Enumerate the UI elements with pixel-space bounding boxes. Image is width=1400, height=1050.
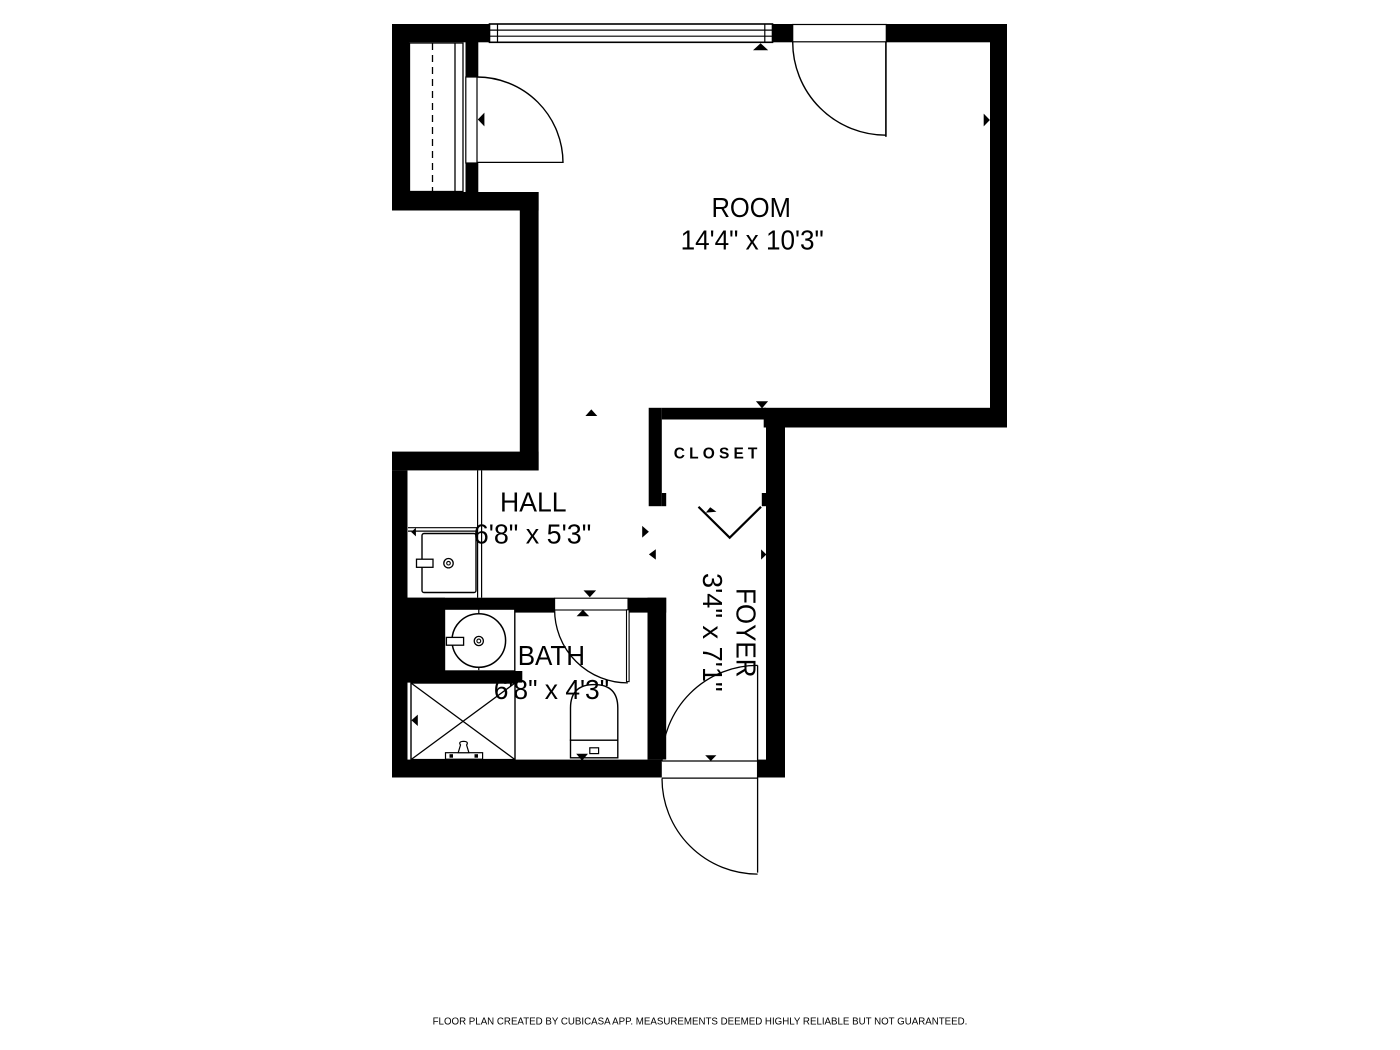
svg-text:6'8" x 4'3": 6'8" x 4'3"	[494, 674, 609, 705]
svg-text:ROOM: ROOM	[711, 192, 791, 223]
svg-text:FLOOR PLAN CREATED BY CUBICASA: FLOOR PLAN CREATED BY CUBICASA APP. MEAS…	[433, 1017, 968, 1028]
svg-text:HALL: HALL	[500, 487, 567, 518]
svg-text:14'4" x 10'3": 14'4" x 10'3"	[681, 224, 824, 255]
svg-text:BATH: BATH	[518, 640, 585, 671]
svg-text:FOYER: FOYER	[731, 588, 762, 678]
svg-text:6'8" x 5'3": 6'8" x 5'3"	[474, 519, 592, 550]
svg-text:3'4" x 7'1": 3'4" x 7'1"	[697, 573, 728, 692]
